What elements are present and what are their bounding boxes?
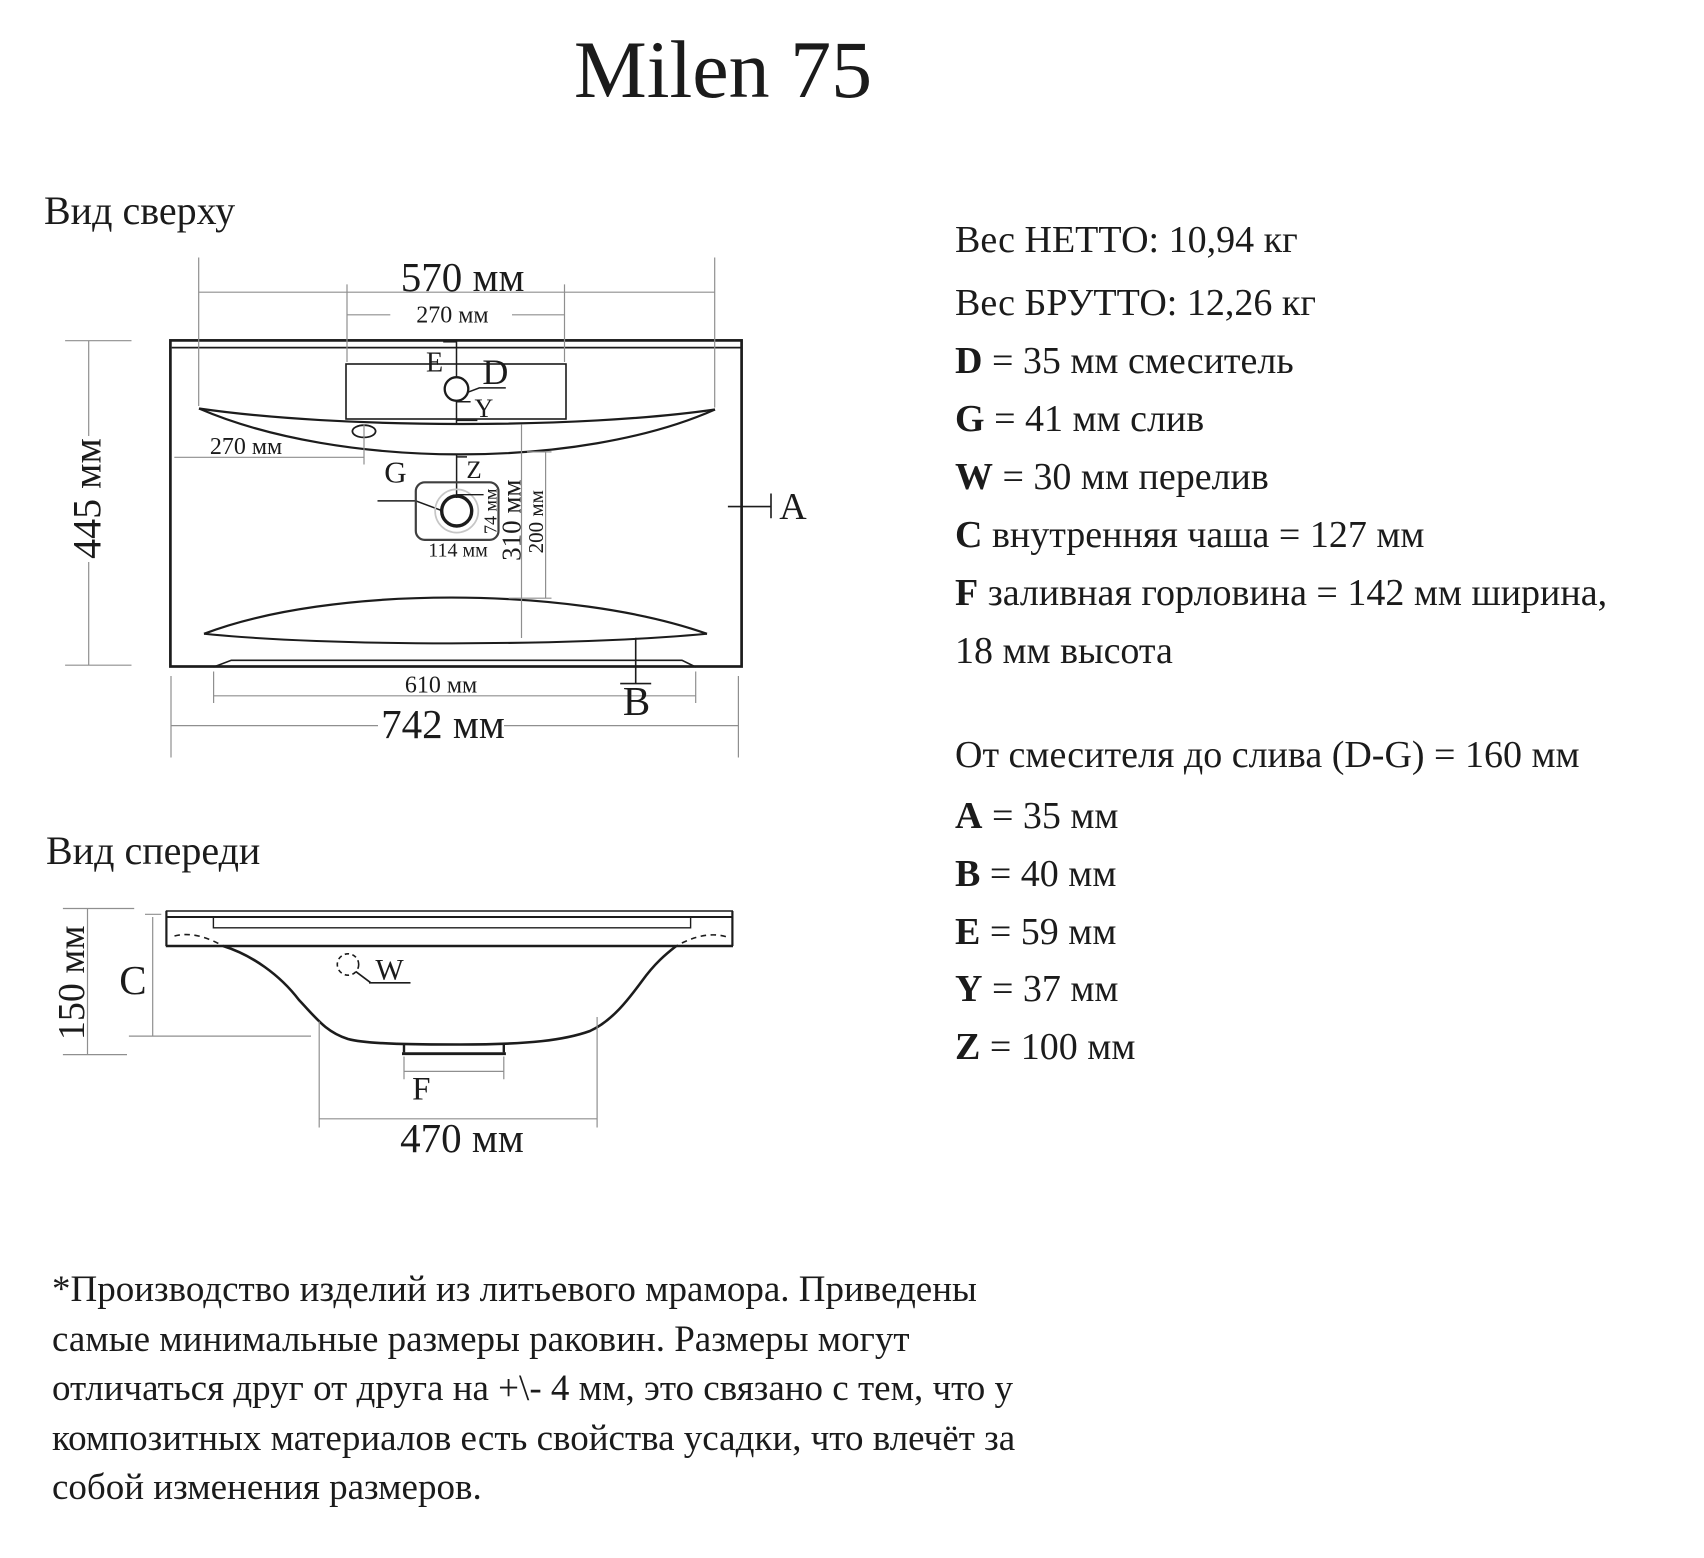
svg-text:270 мм: 270 мм [210, 434, 282, 460]
svg-text:150 мм: 150 мм [51, 926, 93, 1041]
svg-text:470 мм: 470 мм [400, 1115, 524, 1161]
svg-text:610 мм: 610 мм [405, 673, 477, 699]
svg-text:200 мм: 200 мм [524, 490, 548, 553]
svg-text:E: E [426, 347, 443, 378]
svg-text:742 мм: 742 мм [381, 701, 505, 747]
svg-text:114 мм: 114 мм [428, 540, 488, 562]
svg-text:Y: Y [475, 394, 494, 423]
svg-text:310 мм: 310 мм [496, 479, 526, 560]
svg-text:A: A [779, 486, 807, 528]
svg-text:W: W [375, 954, 404, 987]
svg-text:C: C [119, 957, 146, 1003]
svg-text:570 мм: 570 мм [401, 254, 525, 300]
svg-text:270 мм: 270 мм [416, 303, 488, 329]
svg-text:445 мм: 445 мм [64, 438, 109, 559]
svg-text:B: B [623, 678, 650, 724]
svg-text:Z: Z [466, 457, 481, 484]
svg-text:F: F [412, 1072, 430, 1108]
svg-text:G: G [384, 454, 406, 489]
svg-text:D: D [482, 352, 508, 392]
